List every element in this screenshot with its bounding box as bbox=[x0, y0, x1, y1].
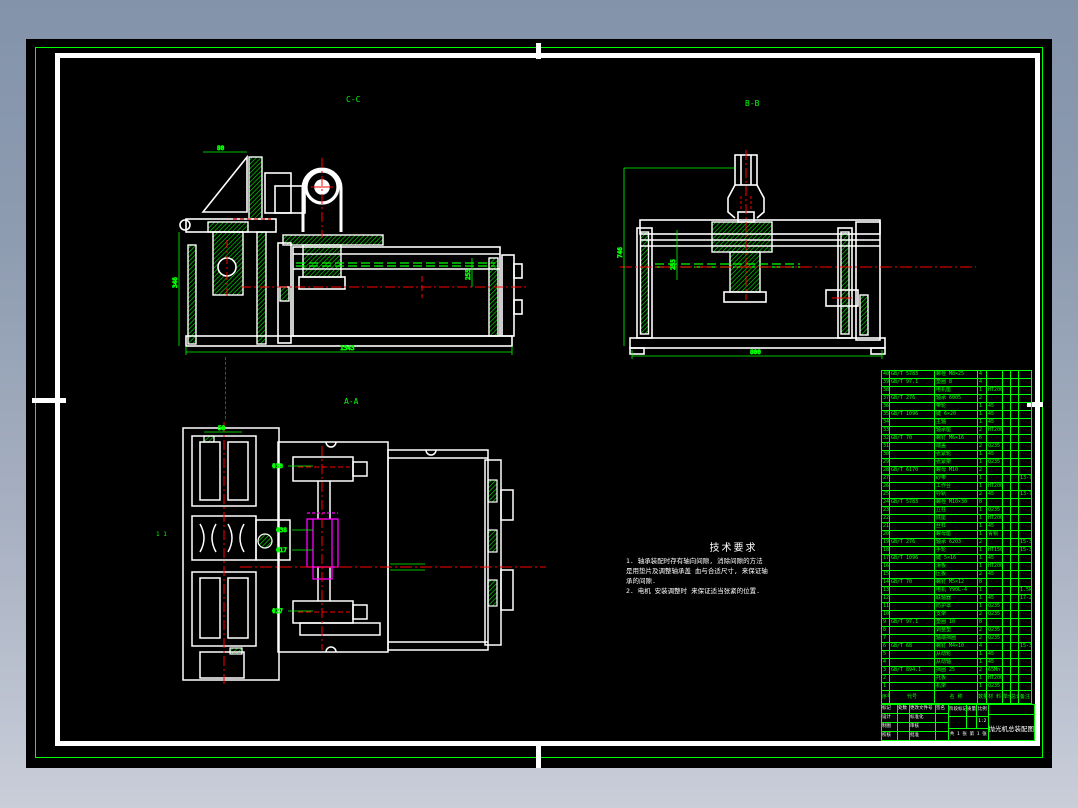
table-row: 4从动轴 145 bbox=[882, 659, 1031, 667]
parts-list-rows: 40GB/T 5783螺栓 M8×25 4 39GB/T 97.1垫圈 8 4 … bbox=[882, 371, 1031, 691]
svg-text:1343: 1343 bbox=[340, 345, 355, 352]
svg-text:58: 58 bbox=[218, 425, 226, 432]
svg-text:Φ30: Φ30 bbox=[272, 463, 283, 470]
section-label-bb: B-B bbox=[745, 100, 759, 108]
table-row: 2托板 1HT200 bbox=[882, 675, 1031, 683]
stage-mark-value bbox=[949, 717, 967, 728]
table-row: 17GB/T 1096键 5×16 145 bbox=[882, 555, 1031, 563]
scale-value: 1:2 bbox=[977, 717, 987, 728]
tech-line: 是用垫片及调整轴承盖 血与合适尺寸, 来保证轴 bbox=[626, 566, 841, 576]
title-block-right: 抛光机总装配图 bbox=[989, 705, 1035, 740]
drawing-title: 抛光机总装配图 bbox=[989, 715, 1035, 740]
table-row: 26工作台 1HT200 bbox=[882, 483, 1031, 491]
section-label-aa: A-A bbox=[344, 398, 358, 406]
section-label-cc: C-C bbox=[346, 96, 360, 104]
table-row: 38电机座 1HT200 bbox=[882, 387, 1031, 395]
table-row: 21丝杠 145 bbox=[882, 523, 1031, 531]
table-row: 8调整垫 2Q235 bbox=[882, 627, 1031, 635]
table-row: 3GB/T 894.1挡圈 25 265Mn bbox=[882, 667, 1031, 675]
centerline-connector bbox=[225, 357, 226, 419]
technical-requirements: 技术要求 1. 轴承装配时存有轴向间隙, 消除间隙的方法 是用垫片及调整轴承盖 … bbox=[626, 539, 841, 596]
table-row: 28GB/T 6170螺母 M10 2 bbox=[882, 467, 1031, 475]
table-row: 16滑板 1HT200 bbox=[882, 563, 1031, 571]
table-row: 12联轴器 14517-25 bbox=[882, 595, 1031, 603]
table-row: 35GB/T 1096键 6×20 145 bbox=[882, 411, 1031, 419]
mass-label: 质量 bbox=[967, 705, 977, 716]
table-row: 27砂带 113-73 bbox=[882, 475, 1031, 483]
bb-hatched-parts bbox=[641, 222, 869, 335]
table-row: 25导轨 24513-73 bbox=[882, 491, 1031, 499]
sheet-count: 共 1 张 第 1 张 bbox=[949, 729, 987, 740]
table-row: 6GB/T 68螺钉 M4×10 415-35 bbox=[882, 643, 1031, 651]
parts-list-table: 40GB/T 5783螺栓 M8×25 4 39GB/T 97.1垫圈 8 4 … bbox=[881, 370, 1032, 704]
aa-centerlines bbox=[224, 422, 546, 686]
drawing-sheet: C-C B-B A-A 1 1 bbox=[26, 39, 1052, 768]
table-row: 24GB/T 5783螺栓 M10×30 8 bbox=[882, 499, 1031, 507]
plan-view-aa: Φ30 Φ38 Φ17 Φ27 58 bbox=[180, 420, 548, 690]
table-row: 18手轮 1HT15015-35 bbox=[882, 547, 1031, 555]
svg-text:800: 800 bbox=[750, 349, 761, 356]
table-row: 31端盖 2Q235 bbox=[882, 443, 1031, 451]
table-row: 9GB/T 97.1垫圈 10 8 bbox=[882, 619, 1031, 627]
tech-line: 承的间隙. bbox=[626, 576, 841, 586]
title-block-row: 设计标准化 bbox=[882, 714, 948, 723]
svg-text:80: 80 bbox=[217, 145, 225, 152]
table-row: 30张紧轮 145 bbox=[882, 451, 1031, 459]
table-row: 1机架 1Q235 bbox=[882, 683, 1031, 691]
center-tick-top bbox=[536, 43, 541, 59]
title-block-row: 制图审核 bbox=[882, 723, 948, 732]
table-row: 19GB/T 276轴承 6203 215-35 bbox=[882, 539, 1031, 547]
table-row: 29张紧架 1Q235 bbox=[882, 459, 1031, 467]
parts-list-header: 序号代号 名 称数量 材 料单件 总计备注 bbox=[882, 691, 1031, 703]
title-block-row: 校核批准 bbox=[882, 732, 948, 740]
table-row: 37GB/T 276轴承 6005 2 bbox=[882, 395, 1031, 403]
svg-text:Φ27: Φ27 bbox=[272, 608, 283, 615]
mass-value bbox=[967, 717, 977, 728]
svg-text:Φ38: Φ38 bbox=[276, 527, 287, 534]
svg-text:Φ17: Φ17 bbox=[276, 547, 287, 554]
table-row: 14GB/T 70螺钉 M5×12 8 bbox=[882, 579, 1031, 587]
table-row: 20螺母座 1青铜 bbox=[882, 531, 1031, 539]
center-tick-left bbox=[32, 398, 66, 403]
table-row: 11防护罩 1Q235 bbox=[882, 603, 1031, 611]
section-view-cc: 1343 346 80 255 bbox=[175, 148, 545, 365]
title-block-signatures: 标记处数更改文件号签名 设计标准化 制图审核 校核批准 bbox=[882, 705, 949, 740]
table-row: 13电机 Y90L-4 11.5kW bbox=[882, 587, 1031, 595]
cc-centerlines bbox=[227, 158, 527, 298]
center-tick-bottom bbox=[536, 744, 541, 768]
table-row: 10支架 2Q235 bbox=[882, 611, 1031, 619]
title-block-middle: 阶段标记 质量 比例 1:2 共 1 张 第 1 张 bbox=[949, 705, 988, 740]
drawing-number-cell bbox=[989, 705, 1035, 715]
table-row: 15压板 245 bbox=[882, 571, 1031, 579]
aa-dimensions: Φ30 Φ38 Φ17 Φ27 58 bbox=[204, 425, 425, 615]
table-row: 7轴端挡圈 2Q235 bbox=[882, 635, 1031, 643]
svg-text:746: 746 bbox=[617, 247, 624, 258]
table-row: 5从动轮 145 bbox=[882, 651, 1031, 659]
title-block: 标记处数更改文件号签名 设计标准化 制图审核 校核批准 bbox=[881, 704, 1035, 741]
table-row: 32GB/T 70螺钉 M6×16 6 bbox=[882, 435, 1031, 443]
tech-line: 1. 轴承装配时存有轴向间隙, 消除间隙的方法 bbox=[626, 556, 841, 566]
table-row: 23立柱 1Q235 bbox=[882, 507, 1031, 515]
svg-text:255: 255 bbox=[670, 259, 677, 270]
title-block-row: 标记处数更改文件号签名 bbox=[882, 705, 948, 714]
bb-centerlines bbox=[620, 150, 976, 300]
table-row: 22底座 1HT200 bbox=[882, 515, 1031, 523]
detail-mark: 1 1 bbox=[156, 531, 167, 539]
table-row: 36带轮 145 bbox=[882, 403, 1031, 411]
aa-outline bbox=[183, 428, 513, 680]
table-row: 34主轴 145 bbox=[882, 419, 1031, 427]
svg-text:346: 346 bbox=[172, 277, 179, 288]
cc-hatched-parts bbox=[188, 157, 498, 344]
tech-title: 技术要求 bbox=[626, 539, 841, 554]
table-row: 33轴承座 2HT200 bbox=[882, 427, 1031, 435]
stage-mark-label: 阶段标记 bbox=[949, 705, 967, 716]
section-view-bb: 746 800 255 bbox=[620, 150, 980, 365]
svg-text:255: 255 bbox=[465, 269, 472, 280]
scale-label: 比例 bbox=[977, 705, 987, 716]
cad-canvas: C-C B-B A-A 1 1 bbox=[0, 0, 1078, 808]
tech-line: 2. 电机 安装调整时 来保证适当张紧的位置. bbox=[626, 586, 841, 596]
table-row: 40GB/T 5783螺栓 M8×25 4 bbox=[882, 371, 1031, 379]
table-row: 39GB/T 97.1垫圈 8 4 bbox=[882, 379, 1031, 387]
